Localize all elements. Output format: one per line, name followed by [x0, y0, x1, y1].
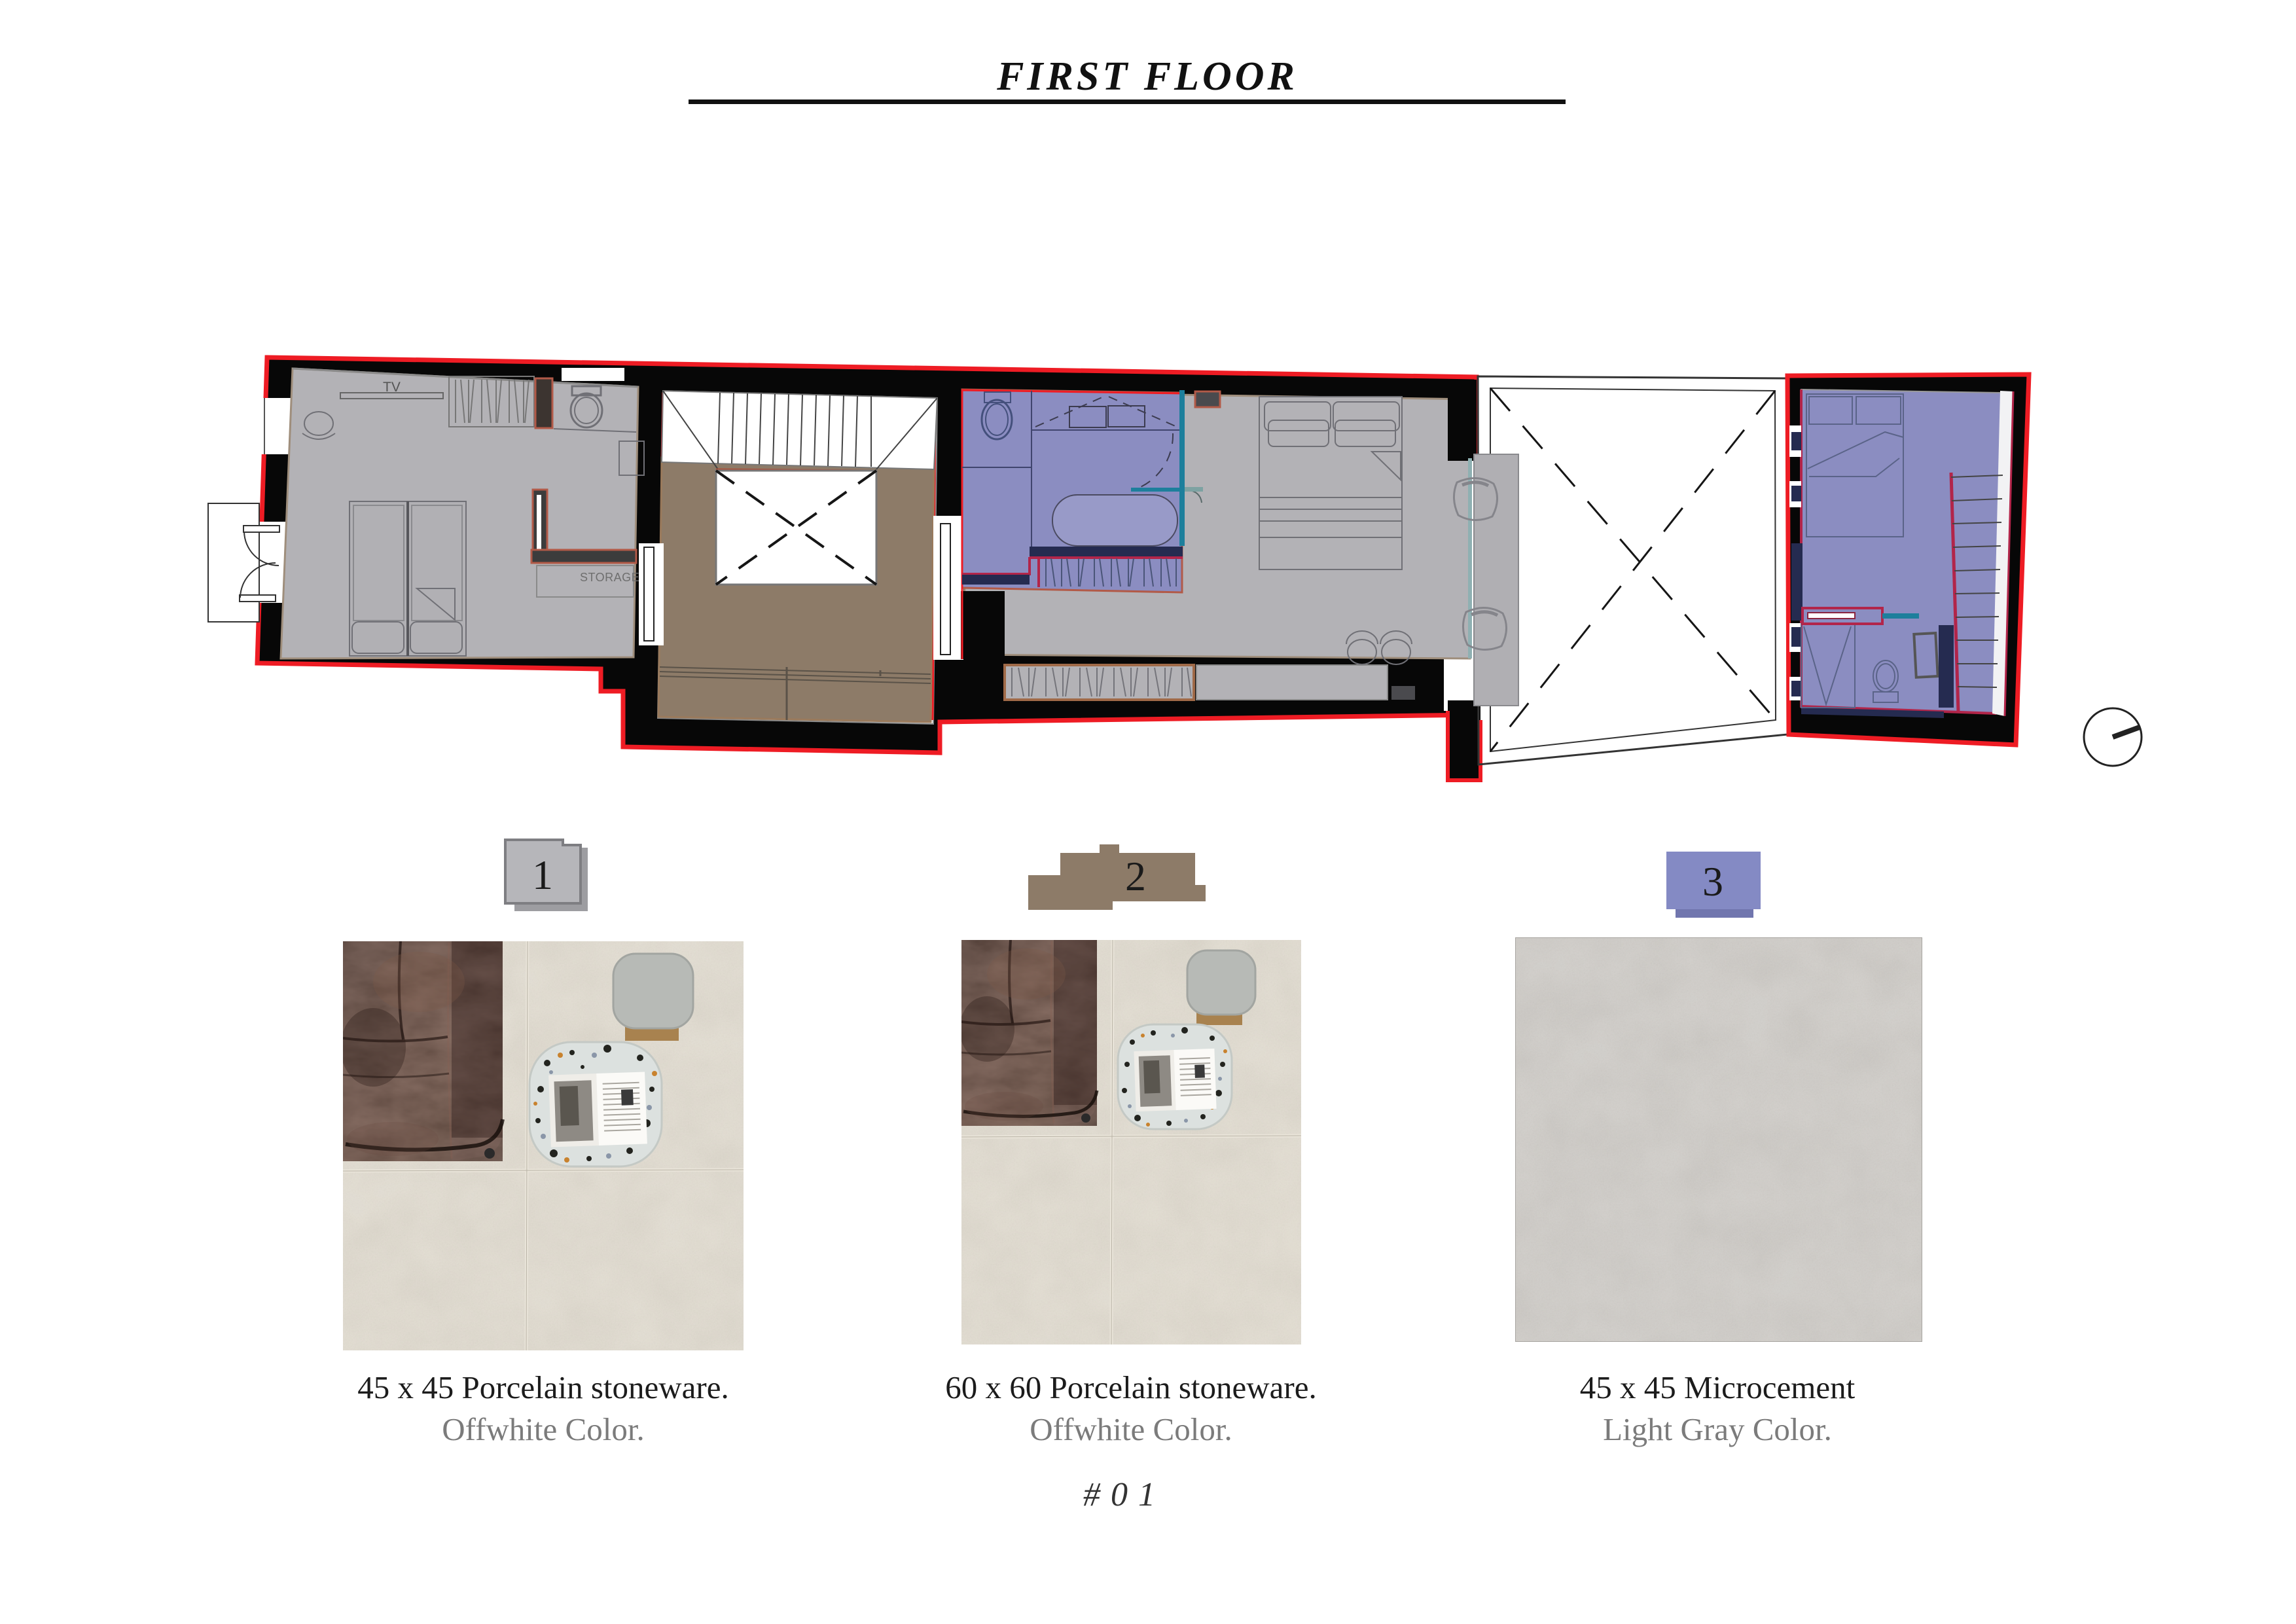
- svg-text:Light Gray Color.: Light Gray Color.: [1603, 1411, 1832, 1447]
- svg-text:2: 2: [1125, 853, 1146, 899]
- svg-text:1: 1: [532, 852, 553, 898]
- svg-text:STORAGE: STORAGE: [580, 571, 639, 584]
- svg-text:Offwhite Color.: Offwhite Color.: [442, 1411, 644, 1447]
- svg-text:45 x 45 Porcelain stoneware.: 45 x 45 Porcelain stoneware.: [357, 1369, 728, 1405]
- svg-text:60 x 60 Porcelain stoneware.: 60 x 60 Porcelain stoneware.: [945, 1369, 1316, 1405]
- svg-text:#01: #01: [1083, 1476, 1166, 1513]
- svg-text:Offwhite Color.: Offwhite Color.: [1030, 1411, 1232, 1447]
- svg-text:3: 3: [1702, 858, 1723, 905]
- svg-text:FIRST FLOOR: FIRST FLOOR: [996, 54, 1298, 99]
- svg-text:45 x 45 Microcement: 45 x 45 Microcement: [1580, 1369, 1856, 1405]
